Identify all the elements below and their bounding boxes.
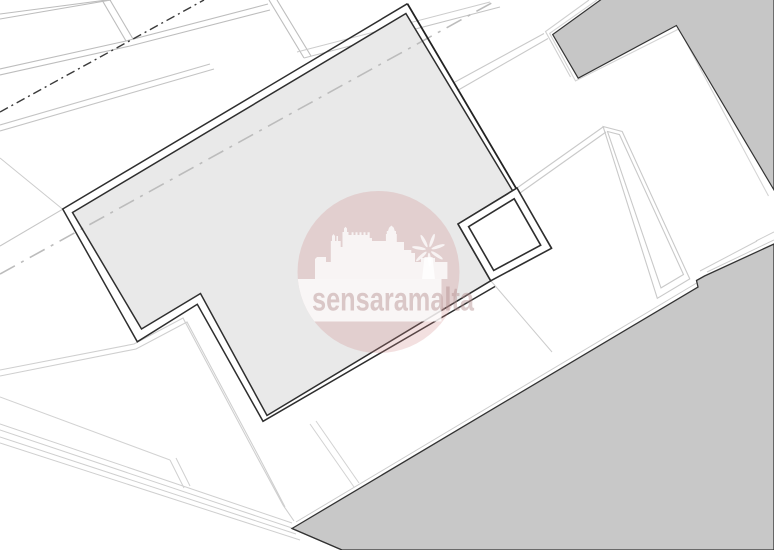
svg-text:sensaramalta: sensaramalta xyxy=(312,281,474,318)
